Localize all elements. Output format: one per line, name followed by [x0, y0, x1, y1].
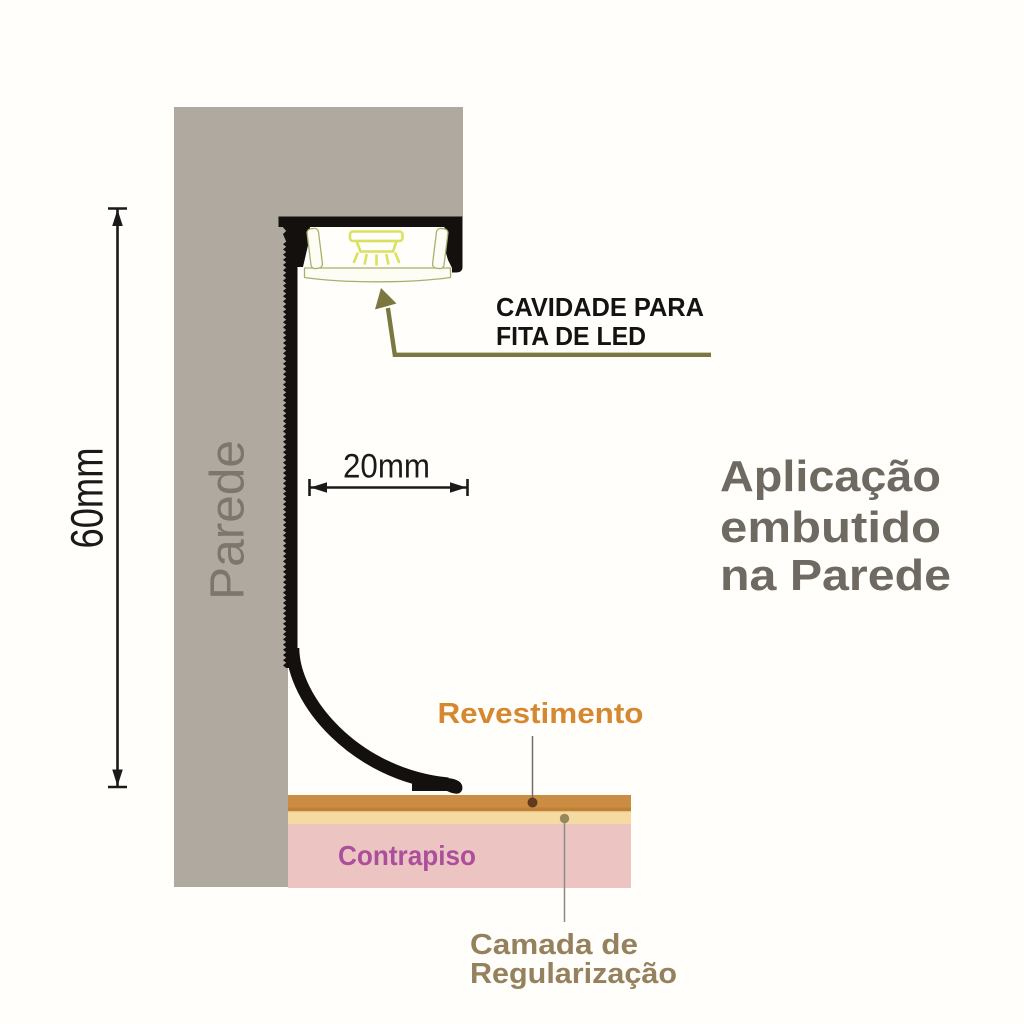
- svg-text:Contrapiso: Contrapiso: [338, 840, 476, 871]
- svg-text:20mm: 20mm: [343, 448, 430, 486]
- svg-text:60mm: 60mm: [61, 448, 112, 549]
- svg-text:Regularização: Regularização: [470, 958, 677, 990]
- svg-text:CAVIDADE PARA: CAVIDADE PARA: [496, 292, 704, 322]
- svg-text:Parede: Parede: [202, 440, 255, 600]
- svg-text:Camada de: Camada de: [470, 929, 638, 961]
- svg-text:FITA DE LED: FITA DE LED: [496, 321, 646, 351]
- svg-text:na Parede: na Parede: [720, 551, 951, 600]
- svg-text:embutido: embutido: [720, 503, 941, 552]
- svg-text:Aplicação: Aplicação: [720, 452, 941, 501]
- svg-text:Revestimento: Revestimento: [438, 698, 644, 730]
